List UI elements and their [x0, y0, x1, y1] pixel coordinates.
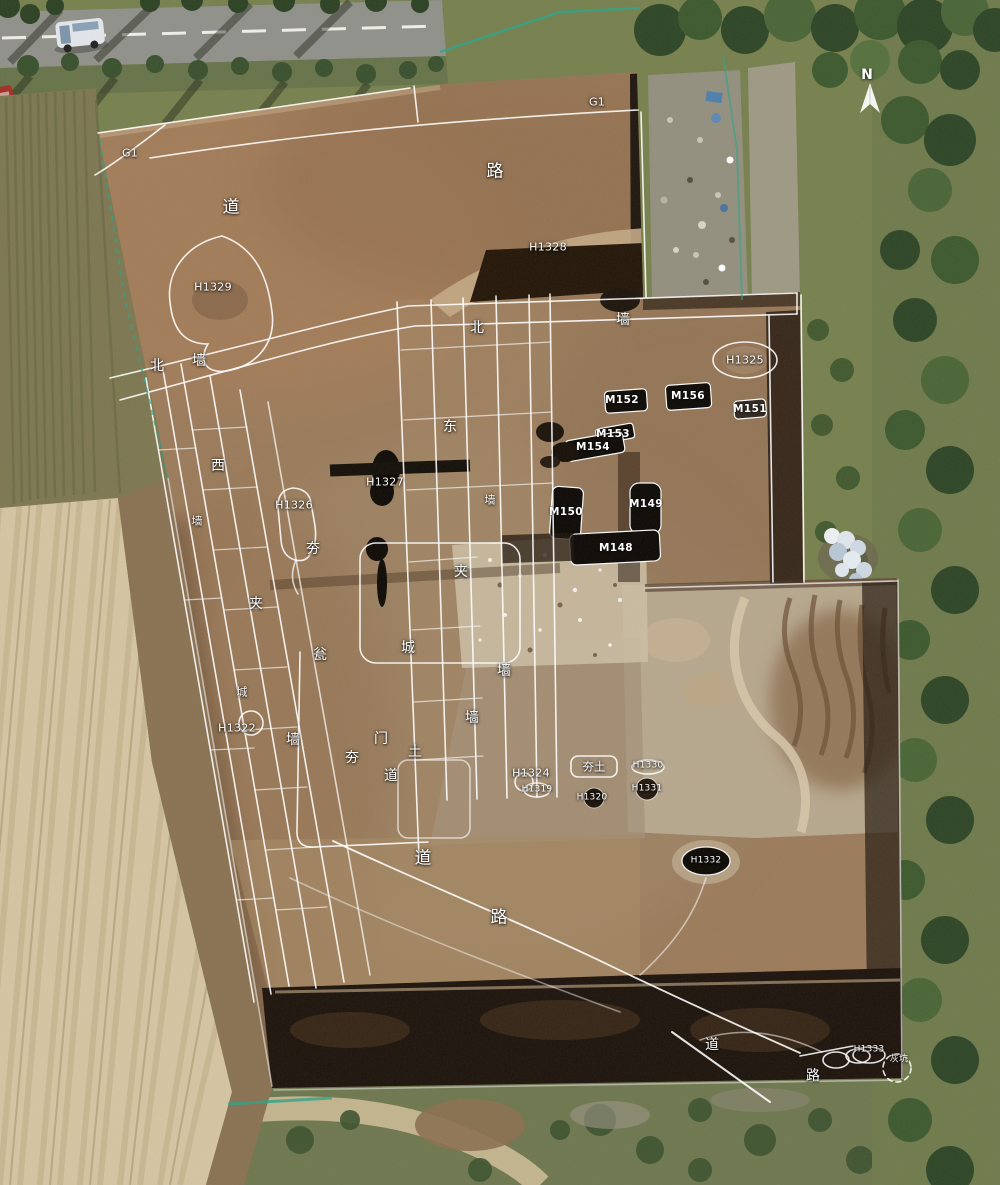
north-label: N	[861, 67, 873, 83]
grain-texture	[0, 0, 1000, 1185]
site-photo-canvas	[0, 0, 1000, 1185]
excavation-orthophoto: G1G1路道H1329H1328北墙北墙H1325M152M156M151M15…	[0, 0, 1000, 1185]
